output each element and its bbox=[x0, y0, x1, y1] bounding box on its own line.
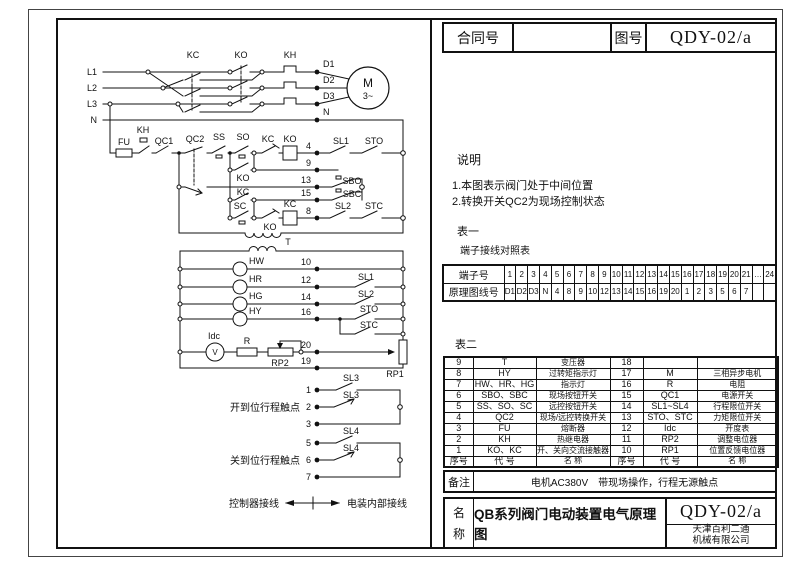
component-cell: 开、关向交流接触器 bbox=[536, 445, 610, 456]
component-cell: RP2 bbox=[643, 434, 697, 445]
component-cell: 调整电位器 bbox=[697, 434, 778, 445]
component-cell: QC2 bbox=[473, 412, 536, 423]
component-cell: 位置反馈电位器 bbox=[697, 445, 778, 456]
circuit-label: RP2 bbox=[271, 358, 289, 368]
component-cell: 变压器 bbox=[536, 357, 610, 368]
component-cell: 开度表 bbox=[697, 423, 778, 434]
remark-text: 电机AC380V 带现场操作，行程无源触点 bbox=[474, 472, 775, 491]
component-cell: FU bbox=[473, 423, 536, 434]
title-header-box: 合同号 图号 QDY-02/a bbox=[442, 22, 777, 53]
component-cell: 6 bbox=[444, 390, 473, 401]
terminal-cell: 16 bbox=[646, 283, 658, 301]
circuit-label: 8 bbox=[306, 206, 311, 216]
terminal-cell: 9 bbox=[575, 283, 587, 301]
terminal-cell: 8 bbox=[563, 283, 575, 301]
terminal-cell: 11 bbox=[622, 265, 634, 283]
circuit-label: Idc bbox=[208, 331, 221, 341]
drawing-no-value: QDY-02/a bbox=[647, 24, 775, 51]
circuit-label: L3 bbox=[87, 99, 97, 109]
circuit-label: SL2 bbox=[358, 289, 374, 299]
lamp-hr bbox=[233, 280, 247, 294]
boundary-right-arrow bbox=[331, 500, 340, 506]
circuit-label: N bbox=[323, 107, 330, 117]
component-cell: 12 bbox=[610, 423, 643, 434]
drawing-no: QDY-02/a bbox=[667, 499, 775, 525]
circuit-label: 15 bbox=[301, 188, 311, 198]
circuit-label: HY bbox=[249, 306, 262, 316]
terminal-cell: 1 bbox=[681, 283, 693, 301]
circuit-label: 10 bbox=[301, 257, 311, 267]
terminal-cell: 3 bbox=[528, 265, 540, 283]
component-cell: 1 bbox=[444, 445, 473, 456]
terminal-cell: 13 bbox=[646, 265, 658, 283]
terminal-cell: 15 bbox=[669, 265, 681, 283]
company-name: 天津百利二通 机械有限公司 bbox=[667, 525, 775, 547]
terminal-cell: 14 bbox=[658, 265, 670, 283]
terminal-cell: 7 bbox=[575, 265, 587, 283]
table2-label: 表二 bbox=[455, 336, 477, 352]
drawing-page: L1L2L3NKCKOKHD1D2D3NM3~FUKHQC1QC2SSSOKCK… bbox=[0, 0, 800, 566]
sc-button-mark bbox=[239, 221, 245, 224]
circuit-label: D1 bbox=[323, 59, 335, 69]
drawing-no-label: 图号 bbox=[612, 24, 647, 51]
terminal-cell: 8 bbox=[587, 265, 599, 283]
component-cell: 熔断器 bbox=[536, 423, 610, 434]
component-cell: 指示灯 bbox=[536, 379, 610, 390]
circuit-label: SBC bbox=[343, 189, 362, 199]
circuit-label: 控制器接线 bbox=[229, 497, 279, 510]
component-header-cell: 序号 bbox=[444, 456, 473, 467]
kh-thermal-mark bbox=[140, 138, 147, 142]
terminal-cell: 9 bbox=[599, 265, 611, 283]
component-cell: 远控按钮开关 bbox=[536, 401, 610, 412]
terminal-cell: 19 bbox=[658, 283, 670, 301]
terminal-cell: 10 bbox=[610, 265, 622, 283]
component-cell: QC1 bbox=[643, 390, 697, 401]
circuit-label: N bbox=[91, 115, 98, 125]
circuit-label: SL1 bbox=[333, 136, 349, 146]
component-cell: 过转矩指示灯 bbox=[536, 368, 610, 379]
note-item: 1.本图表示阀门处于中间位置 bbox=[452, 179, 762, 195]
terminal-cell bbox=[764, 283, 776, 301]
circuit-label: KO bbox=[283, 134, 296, 144]
circuit-label: R bbox=[244, 336, 251, 346]
circuit-label: SL3 bbox=[343, 373, 359, 383]
mechanical-links bbox=[192, 66, 241, 185]
circuit-label: KC bbox=[284, 199, 297, 209]
notes-title: 说明 bbox=[457, 152, 762, 169]
component-cell: 11 bbox=[610, 434, 643, 445]
remark-label: 备注 bbox=[445, 472, 474, 491]
terminal-cell: D3 bbox=[528, 283, 540, 301]
circuit-label: KO bbox=[263, 222, 276, 232]
component-cell: RP1 bbox=[643, 445, 697, 456]
component-cell: KH bbox=[473, 434, 536, 445]
component-cell: 7 bbox=[444, 379, 473, 390]
circuit-label: 16 bbox=[301, 307, 311, 317]
component-cell: STO、STC bbox=[643, 412, 697, 423]
name-label: 名 称 bbox=[445, 499, 474, 547]
boundary-left-arrow bbox=[285, 500, 294, 506]
terminal-cell: N bbox=[539, 283, 551, 301]
terminal-cell: 6 bbox=[728, 283, 740, 301]
circuit-label: KH bbox=[137, 125, 150, 135]
circuit-label: 2 bbox=[306, 402, 311, 412]
component-cell: 8 bbox=[444, 368, 473, 379]
circuit-label: D3 bbox=[323, 91, 335, 101]
component-cell: 现场/远控转换开关 bbox=[536, 412, 610, 423]
component-header-cell: 名 称 bbox=[697, 456, 778, 467]
component-cell: T bbox=[473, 357, 536, 368]
drawing-title: QB系列阀门电动装置电气原理图 bbox=[474, 499, 667, 547]
table1-label: 表一 bbox=[457, 223, 479, 239]
circuit-label: STO bbox=[365, 136, 383, 146]
component-cell: Idc bbox=[643, 423, 697, 434]
circuit-label: KO bbox=[234, 50, 247, 60]
terminal-cell: 14 bbox=[622, 283, 634, 301]
circuit-label: SO bbox=[236, 132, 249, 142]
terminal-cell: 21 bbox=[740, 265, 752, 283]
circuit-label: 3~ bbox=[363, 91, 373, 101]
terminal-cell: 5 bbox=[717, 283, 729, 301]
circuit-label: 5 bbox=[306, 438, 311, 448]
circuit-label: SL3 bbox=[343, 390, 359, 400]
terminal-cell: … bbox=[752, 265, 764, 283]
circuit-label: 1 bbox=[306, 385, 311, 395]
terminal-cell: 12 bbox=[599, 283, 611, 301]
circuit-label: 关到位行程触点 bbox=[230, 454, 300, 467]
terminal-cell: 20 bbox=[728, 265, 740, 283]
terminal-cell: 5 bbox=[551, 265, 563, 283]
circuit-label: 13 bbox=[301, 175, 311, 185]
circuit-label: M bbox=[363, 76, 373, 90]
ko-coil-symbol bbox=[283, 146, 297, 160]
component-cell: 10 bbox=[610, 445, 643, 456]
notes-block: 说明 1.本图表示阀门处于中间位置 2.转换开关QC2为现场控制状态 bbox=[452, 152, 762, 211]
circuit-label: SL4 bbox=[343, 443, 359, 453]
circuit-label: KC bbox=[237, 187, 250, 197]
component-header-cell: 代 号 bbox=[473, 456, 536, 467]
component-cell: SBO、SBC bbox=[473, 390, 536, 401]
terminal-row-header: 端子号 bbox=[443, 265, 504, 283]
circuit-label: QC2 bbox=[186, 134, 205, 144]
circuit-label: RP1 bbox=[386, 369, 404, 379]
component-cell bbox=[643, 357, 697, 368]
component-cell: 15 bbox=[610, 390, 643, 401]
component-table: 9T变压器188HY过转矩指示灯17M三相异步电机7HW、HR、HG指示灯16R… bbox=[443, 356, 779, 468]
component-cell: 9 bbox=[444, 357, 473, 368]
terminal-cell: D2 bbox=[516, 283, 528, 301]
ss-button-mark bbox=[216, 155, 222, 158]
component-cell: SS、SO、SC bbox=[473, 401, 536, 412]
component-cell: 现场按钮开关 bbox=[536, 390, 610, 401]
component-cell: 17 bbox=[610, 368, 643, 379]
terminal-cell: 15 bbox=[634, 283, 646, 301]
circuit-label: D2 bbox=[323, 75, 335, 85]
sbo-button-mark bbox=[336, 176, 341, 179]
component-cell: 16 bbox=[610, 379, 643, 390]
terminal-cell: 6 bbox=[563, 265, 575, 283]
circuit-label: SS bbox=[213, 132, 225, 142]
contract-no-label: 合同号 bbox=[444, 24, 514, 51]
circuit-label: 19 bbox=[301, 356, 311, 366]
component-cell: 电阻 bbox=[697, 379, 778, 390]
circuit-label: STC bbox=[360, 320, 379, 330]
name-label-char: 称 bbox=[453, 525, 465, 542]
circuit-label: FU bbox=[118, 137, 130, 147]
circuit-label: STO bbox=[360, 304, 378, 314]
terminal-cell: D1 bbox=[504, 283, 516, 301]
component-cell: M bbox=[643, 368, 697, 379]
component-header-cell: 名 称 bbox=[536, 456, 610, 467]
rp1-wiper-arrow bbox=[388, 349, 395, 355]
contract-no-value bbox=[514, 24, 612, 51]
resistor-symbol bbox=[237, 348, 257, 356]
terminal-cell: 4 bbox=[539, 265, 551, 283]
control-wires bbox=[110, 106, 403, 238]
component-header-cell: 代 号 bbox=[643, 456, 697, 467]
sbc-button-mark bbox=[336, 189, 341, 192]
component-cell: R bbox=[643, 379, 697, 390]
rp2-potentiometer-symbol bbox=[268, 348, 293, 356]
component-cell: 热继电器 bbox=[536, 434, 610, 445]
terminal-cell: 20 bbox=[669, 283, 681, 301]
circuit-label: 12 bbox=[301, 275, 311, 285]
component-cell: 5 bbox=[444, 401, 473, 412]
component-cell: SL1~SL4 bbox=[643, 401, 697, 412]
lamp-hy bbox=[233, 312, 247, 326]
circuit-label: SBO bbox=[342, 176, 361, 186]
circuit-label: 电装内部接线 bbox=[347, 497, 407, 510]
terminal-cell: 10 bbox=[587, 283, 599, 301]
component-cell: 18 bbox=[610, 357, 643, 368]
component-cell: 行程限位开关 bbox=[697, 401, 778, 412]
terminal-cell: 7 bbox=[740, 283, 752, 301]
terminal-cell: 19 bbox=[717, 265, 729, 283]
circuit-label: STC bbox=[365, 201, 384, 211]
circuit-label: SC bbox=[234, 201, 247, 211]
terminal-cell: 1 bbox=[504, 265, 516, 283]
circuit-label: 9 bbox=[306, 158, 311, 168]
terminal-cell: 13 bbox=[610, 283, 622, 301]
component-cell: HW、HR、HG bbox=[473, 379, 536, 390]
circuit-label: QC1 bbox=[155, 136, 174, 146]
component-cell: 力矩限位开关 bbox=[697, 412, 778, 423]
table1-title: 端子接线对照表 bbox=[460, 242, 530, 257]
circuit-label: KO bbox=[236, 173, 249, 183]
component-cell: KO、KC bbox=[473, 445, 536, 456]
circuit-label: 7 bbox=[306, 472, 311, 482]
component-cell: 三相异步电机 bbox=[697, 368, 778, 379]
circuit-label: KH bbox=[284, 50, 297, 60]
component-cell bbox=[697, 357, 778, 368]
component-cell: 3 bbox=[444, 423, 473, 434]
name-label-char: 名 bbox=[453, 504, 465, 521]
terminal-cell: 2 bbox=[693, 283, 705, 301]
lamp-hw bbox=[233, 262, 247, 276]
so-button-mark bbox=[239, 155, 245, 158]
circuit-label: T bbox=[285, 237, 291, 247]
terminal-table: 端子号123456789101112131415161718192021…24原… bbox=[442, 264, 777, 302]
component-header-cell: 序号 bbox=[610, 456, 643, 467]
circuit-label: 20 bbox=[301, 340, 311, 350]
circuit-label: 14 bbox=[301, 292, 311, 302]
terminal-cell: 16 bbox=[681, 265, 693, 283]
circuit-label: 开到位行程触点 bbox=[230, 401, 300, 414]
terminal-cell: 4 bbox=[551, 283, 563, 301]
component-cell: 2 bbox=[444, 434, 473, 445]
circuit-label: 6 bbox=[306, 455, 311, 465]
terminal-cell: 2 bbox=[516, 265, 528, 283]
circuit-label: SL2 bbox=[335, 201, 351, 211]
terminal-cell: 17 bbox=[693, 265, 705, 283]
terminal-cell bbox=[752, 283, 764, 301]
company-line: 机械有限公司 bbox=[692, 536, 749, 547]
component-cell: 13 bbox=[610, 412, 643, 423]
lamp-hg bbox=[233, 297, 247, 311]
rp1-potentiometer-symbol bbox=[399, 340, 407, 364]
circuit-label: HW bbox=[249, 256, 264, 266]
terminal-cell: 24 bbox=[764, 265, 776, 283]
component-cell: 电源开关 bbox=[697, 390, 778, 401]
circuit-label: 4 bbox=[306, 141, 311, 151]
circuit-label: HG bbox=[249, 291, 263, 301]
component-cell: 4 bbox=[444, 412, 473, 423]
circuit-label: KC bbox=[187, 50, 200, 60]
circuit-label: 3 bbox=[306, 419, 311, 429]
circuit-label: SL4 bbox=[343, 426, 359, 436]
circuit-label: KC bbox=[262, 134, 275, 144]
kc-coil-symbol bbox=[283, 211, 297, 225]
terminal-row-header: 原理图线号 bbox=[443, 283, 504, 301]
circuit-label: L2 bbox=[87, 83, 97, 93]
terminal-cell: 3 bbox=[705, 283, 717, 301]
terminal-cell: 12 bbox=[634, 265, 646, 283]
terminal-cell: 18 bbox=[705, 265, 717, 283]
component-cell: HY bbox=[473, 368, 536, 379]
component-cell: 14 bbox=[610, 401, 643, 412]
circuit-label: L1 bbox=[87, 67, 97, 77]
circuit-label: SL1 bbox=[358, 272, 374, 282]
note-item: 2.转换开关QC2为现场控制状态 bbox=[452, 195, 762, 211]
remark-box: 备注 电机AC380V 带现场操作，行程无源触点 bbox=[443, 470, 777, 493]
title-block: 名 称 QB系列阀门电动装置电气原理图 QDY-02/a 天津百利二通 机械有限… bbox=[443, 497, 777, 549]
circuit-label: V bbox=[212, 348, 218, 357]
fuse-symbol bbox=[116, 149, 132, 157]
title-block-right: QDY-02/a 天津百利二通 机械有限公司 bbox=[667, 499, 775, 547]
circuit-label: HR bbox=[249, 274, 262, 284]
